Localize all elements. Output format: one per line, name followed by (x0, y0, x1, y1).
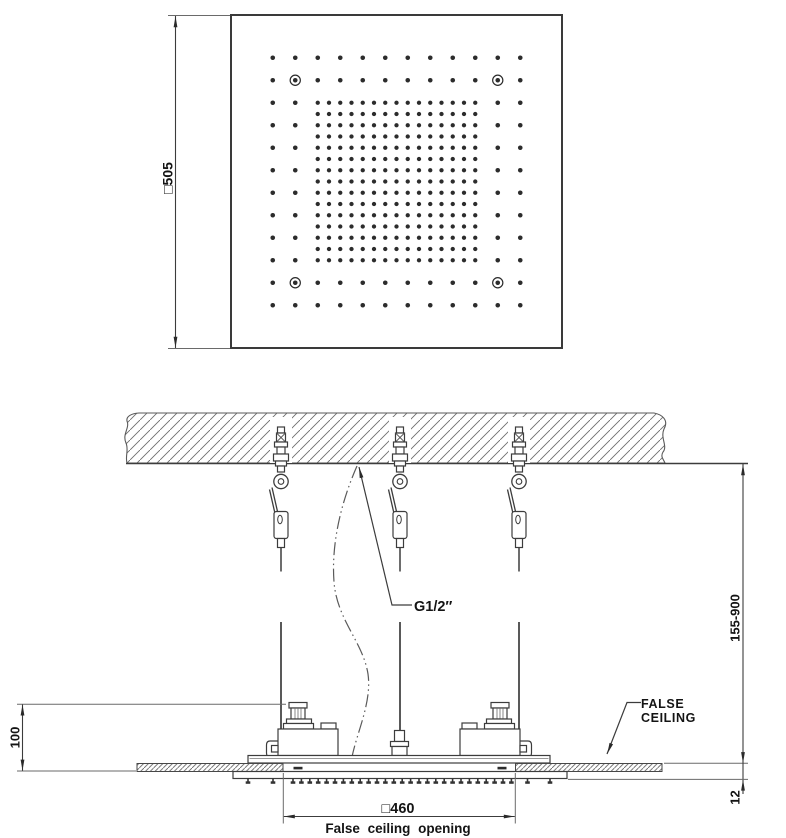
nozzle-dot (338, 157, 342, 161)
nozzle-dot (451, 101, 455, 105)
nozzle-dot (439, 134, 443, 138)
nozzle-dot (270, 213, 275, 218)
flexible-hose-centerline (334, 466, 369, 757)
nozzle-dot (372, 134, 376, 138)
nozzle-dot (349, 258, 353, 262)
false-ceiling-label-2: CEILING (641, 711, 696, 725)
nozzle-dot (450, 280, 455, 285)
nozzle-dot (327, 134, 331, 138)
nozzle-dot (518, 55, 523, 60)
nozzle-dot (518, 123, 523, 128)
nozzle-dot (394, 191, 398, 195)
nozzle-dot (316, 258, 320, 262)
nozzle-dot (327, 236, 331, 240)
nozzle-dot (473, 157, 477, 161)
nozzle-dot (406, 157, 410, 161)
nozzle-dot (349, 236, 353, 240)
nozzle-dot (450, 303, 455, 308)
nozzle-dot (439, 258, 443, 262)
nozzle-dot (428, 213, 432, 217)
nozzle-dot (361, 213, 365, 217)
nozzle-dot (338, 179, 342, 183)
nozzle-dot (462, 101, 466, 105)
nozzle-dot (327, 191, 331, 195)
nozzle-dot (349, 146, 353, 150)
dimension-155-900: 155-900 (664, 464, 748, 794)
nozzle-dot (327, 202, 331, 206)
nozzle-dot (405, 303, 410, 308)
nozzle-dot (462, 134, 466, 138)
nozzle-dot (270, 190, 275, 195)
nozzle-dot (473, 123, 477, 127)
nozzle-dot (495, 123, 500, 128)
nozzle-dot (338, 134, 342, 138)
nozzle-dot (462, 168, 466, 172)
nozzle-dot (417, 213, 421, 217)
nozzle-dot (439, 179, 443, 183)
nozzle-dot (293, 145, 298, 150)
nozzle-dot (360, 280, 365, 285)
left-connection-box (267, 703, 339, 758)
nozzle-dot (473, 55, 478, 60)
nozzle-dot (372, 213, 376, 217)
nozzle-dot (406, 236, 410, 240)
eyelet-ring (274, 474, 288, 488)
nozzle-dot (383, 191, 387, 195)
g12-callout: G1/2″ (359, 467, 452, 615)
nozzle-dot (428, 202, 432, 206)
nozzle-dot (293, 280, 298, 285)
nozzle-dot (394, 258, 398, 262)
nozzle-dot (462, 213, 466, 217)
nozzle-dot (383, 55, 388, 60)
dimension-12-label: 12 (728, 790, 743, 804)
nozzle-dot (451, 168, 455, 172)
nozzle-dot (338, 258, 342, 262)
nozzle-dot (495, 168, 500, 173)
nozzle-dot (383, 303, 388, 308)
nozzle-dot (518, 78, 523, 83)
nozzle-dot (417, 202, 421, 206)
nozzle-dot (450, 55, 455, 60)
nozzle-dot (417, 112, 421, 116)
false-ceiling-leader (607, 703, 641, 755)
nozzle-dot (383, 213, 387, 217)
dimension-155-900-label: 155-900 (728, 594, 743, 642)
nozzle-dot (439, 146, 443, 150)
nozzle-dot (327, 123, 331, 127)
nozzle-dot (495, 145, 500, 150)
nozzle-dot (372, 191, 376, 195)
nozzle-dot (451, 258, 455, 262)
nozzle-dot (417, 236, 421, 240)
nozzle-dot (439, 101, 443, 105)
nozzle-dot (270, 168, 275, 173)
nozzle-dot (383, 202, 387, 206)
nozzle-dot (349, 123, 353, 127)
nozzle-dot (372, 157, 376, 161)
nozzle-dot (428, 280, 433, 285)
nozzle-dot (518, 145, 523, 150)
panel-screw-right (498, 767, 507, 770)
nozzle-dot (439, 202, 443, 206)
dimension-100: 100 (8, 704, 287, 771)
nozzle-dot (439, 168, 443, 172)
nozzle-dot (518, 168, 523, 173)
nozzle-dot (349, 224, 353, 228)
nozzle-dot (406, 224, 410, 228)
nozzle-dot (394, 168, 398, 172)
nozzle-dot (327, 157, 331, 161)
nozzle-dot (270, 235, 275, 240)
nozzle-dot (439, 191, 443, 195)
false-ceiling-left (137, 764, 283, 772)
nozzle-dot (372, 236, 376, 240)
nozzle-dot (316, 224, 320, 228)
nozzle-dot (428, 224, 432, 228)
nozzle-dot (316, 123, 320, 127)
nozzle-dot (439, 157, 443, 161)
nozzle-dot (417, 224, 421, 228)
nozzle-dot (495, 190, 500, 195)
nozzle-dot (450, 78, 455, 83)
nozzle-dot (451, 157, 455, 161)
nozzle-dot (394, 213, 398, 217)
nozzle-dot (406, 202, 410, 206)
nozzle-dot (394, 179, 398, 183)
nozzle-dot (383, 247, 387, 251)
nozzle-dot (451, 191, 455, 195)
nozzle-dot (495, 258, 500, 263)
nozzle-dot (394, 134, 398, 138)
nozzle-dot (383, 123, 387, 127)
nozzle-dot (473, 258, 477, 262)
nozzle-dot (361, 123, 365, 127)
nozzle-dot (349, 179, 353, 183)
nozzle-dot (338, 101, 342, 105)
nozzle-dot (518, 280, 523, 285)
nozzle-dot (316, 134, 320, 138)
nozzle-dot (518, 213, 523, 218)
nozzle-dot (316, 157, 320, 161)
nozzle-dot (518, 100, 523, 105)
nozzle-dot (383, 78, 388, 83)
nozzle-dot (338, 303, 343, 308)
nozzle-dot (383, 101, 387, 105)
nozzle-dot (428, 123, 432, 127)
nozzle-dot (338, 112, 342, 116)
nozzle-dot (293, 235, 298, 240)
nozzle-dot (316, 213, 320, 217)
nozzle-dot (451, 123, 455, 127)
nozzle-dot (462, 236, 466, 240)
nozzle-dot (270, 123, 275, 128)
nozzle-dot (361, 146, 365, 150)
nozzle-dot (361, 112, 365, 116)
nozzle-dot (316, 247, 320, 251)
nozzle-dot (473, 224, 477, 228)
nozzle-dot (349, 112, 353, 116)
nozzle-dot (439, 247, 443, 251)
nozzle-dot (361, 191, 365, 195)
nozzle-dot (428, 303, 433, 308)
nozzle-dot (462, 157, 466, 161)
nozzle-dot (372, 202, 376, 206)
nozzle-dot (372, 112, 376, 116)
g12-label: G1/2″ (414, 599, 452, 615)
nozzle-dot (316, 202, 320, 206)
nozzle-dot (518, 303, 523, 308)
nozzle-dot (417, 168, 421, 172)
nozzle-dot (428, 112, 432, 116)
false-ceiling-label-1: FALSE (641, 697, 684, 711)
false-ceiling-right (516, 764, 663, 772)
nozzle-dot (293, 55, 298, 60)
nozzle-dot (383, 168, 387, 172)
nozzle-dot (293, 100, 298, 105)
carabiner-hook (510, 488, 516, 512)
nozzle-dot (406, 191, 410, 195)
nozzle-dot (349, 213, 353, 217)
nozzle-dot (383, 236, 387, 240)
nozzle-dot (338, 236, 342, 240)
nozzle-dot (428, 179, 432, 183)
carabiner-hook (272, 488, 278, 512)
nozzle-dot (316, 191, 320, 195)
nozzle-dot (361, 157, 365, 161)
nozzle-dot (338, 191, 342, 195)
opening-caption: False ceiling opening (325, 821, 470, 836)
nozzle-dot (495, 78, 500, 83)
nozzle-dot (518, 235, 523, 240)
nozzle-dot (462, 191, 466, 195)
nozzle-dot (349, 168, 353, 172)
nozzle-dot (473, 134, 477, 138)
nozzle-dot (495, 280, 500, 285)
nozzle-dot (293, 213, 298, 218)
nozzle-dot (406, 247, 410, 251)
nozzle-dot (394, 224, 398, 228)
nozzle-dot (428, 78, 433, 83)
nozzle-dot (361, 168, 365, 172)
nozzle-dot (473, 78, 478, 83)
nozzle-dot (338, 280, 343, 285)
nozzle-dot (338, 55, 343, 60)
nozzle-dot (316, 168, 320, 172)
nozzle-dot (361, 258, 365, 262)
nozzle-dot (293, 168, 298, 173)
shower-unit (248, 703, 550, 764)
nozzle-dot (349, 134, 353, 138)
dimension-505: □505 (160, 16, 176, 348)
nozzle-dot (406, 146, 410, 150)
nozzle-dot (417, 123, 421, 127)
nozzle-dot (327, 112, 331, 116)
nozzle-dot (473, 213, 477, 217)
nozzle-dot (270, 280, 275, 285)
nozzle-dot (394, 146, 398, 150)
nozzle-dot (451, 179, 455, 183)
nozzle-dot (428, 236, 432, 240)
nozzle-dot (439, 224, 443, 228)
nozzle-dot (428, 247, 432, 251)
nozzle-dot (451, 236, 455, 240)
nozzle-dot (428, 157, 432, 161)
nozzle-dot (473, 146, 477, 150)
nozzle-dot (462, 179, 466, 183)
eyelet-ring (512, 474, 526, 488)
eyelet-ring (393, 474, 407, 488)
nozzle-dot (383, 134, 387, 138)
nozzle-dot (372, 179, 376, 183)
dimension-505-label: □505 (160, 162, 176, 194)
nozzle-dot (451, 224, 455, 228)
nozzle-dot (327, 258, 331, 262)
nozzle-dot (361, 179, 365, 183)
nozzle-dot (293, 123, 298, 128)
nozzle-dot (360, 55, 365, 60)
nozzle-dot (383, 157, 387, 161)
nozzle-dot (394, 157, 398, 161)
nozzle-dot (495, 213, 500, 218)
nozzle-dot (394, 202, 398, 206)
nozzle-dot (405, 280, 410, 285)
nozzle-dot (316, 236, 320, 240)
nozzle-dot (316, 112, 320, 116)
right-connection-box (460, 703, 532, 758)
nozzle-dot (349, 247, 353, 251)
nozzle-dot (417, 179, 421, 183)
dimension-100-label: 100 (8, 727, 23, 749)
nozzle-dot (372, 168, 376, 172)
nozzle-dot (405, 78, 410, 83)
nozzle-dot (518, 258, 523, 263)
nozzle-dot (394, 247, 398, 251)
nozzle-dot (428, 191, 432, 195)
nozzle-dot (473, 247, 477, 251)
nozzle-dot (315, 78, 320, 83)
nozzle-dot (361, 101, 365, 105)
nozzle-dot (439, 112, 443, 116)
nozzle-dot (473, 179, 477, 183)
nozzle-dot (316, 146, 320, 150)
nozzle-dot (338, 146, 342, 150)
nozzle-dot (451, 213, 455, 217)
nozzle-dot (383, 179, 387, 183)
nozzle-dot (293, 78, 298, 83)
nozzle-dot (462, 224, 466, 228)
nozzle-dot (406, 134, 410, 138)
nozzle-dot (349, 101, 353, 105)
nozzle-dot (473, 191, 477, 195)
nozzle-dot (338, 168, 342, 172)
nozzle-dot (406, 179, 410, 183)
nozzle-dot (315, 303, 320, 308)
nozzle-dot (406, 112, 410, 116)
nozzle-dot (293, 258, 298, 263)
nozzle-dot (417, 101, 421, 105)
nozzle-dot (361, 202, 365, 206)
nozzle-dot (417, 191, 421, 195)
nozzle-dot (451, 112, 455, 116)
nozzle-dot (327, 247, 331, 251)
panel-screw-left (294, 767, 303, 770)
nozzle-dot (495, 100, 500, 105)
nozzle-dot (439, 213, 443, 217)
nozzle-dot (406, 168, 410, 172)
nozzle-dot (338, 202, 342, 206)
nozzle-dot (473, 303, 478, 308)
nozzle-dot (316, 101, 320, 105)
nozzle-dot (372, 258, 376, 262)
nozzle-teeth (246, 779, 553, 784)
nozzle-dot (383, 224, 387, 228)
nozzle-dot (360, 303, 365, 308)
nozzle-dot (270, 145, 275, 150)
nozzle-dot (360, 78, 365, 83)
nozzle-dot (417, 134, 421, 138)
technical-drawing-page: □505 G1/2″ (0, 0, 786, 838)
nozzle-dot (270, 100, 275, 105)
nozzle-dot (394, 112, 398, 116)
nozzle-dot (372, 146, 376, 150)
nozzle-dot (394, 123, 398, 127)
nozzle-dot (361, 134, 365, 138)
frame-plate (248, 756, 550, 764)
nozzle-dot (451, 247, 455, 251)
nozzle-dot (372, 247, 376, 251)
nozzle-dot (349, 202, 353, 206)
nozzle-dot (406, 258, 410, 262)
nozzle-dot (270, 303, 275, 308)
nozzle-dot (316, 179, 320, 183)
nozzle-dot (361, 224, 365, 228)
nozzle-dot (417, 258, 421, 262)
nozzle-dot (406, 101, 410, 105)
nozzle-dot (495, 235, 500, 240)
nozzle-dot (349, 157, 353, 161)
nozzle-dot (462, 146, 466, 150)
nozzle-dot (327, 224, 331, 228)
nozzle-dot (428, 134, 432, 138)
dimension-12: 12 (568, 779, 748, 804)
nozzle-dot (473, 236, 477, 240)
nozzle-dot (462, 258, 466, 262)
false-ceiling-callout: FALSE CEILING (607, 697, 696, 754)
nozzle-dot (327, 146, 331, 150)
dimension-460-label: □460 (382, 801, 415, 817)
nozzle-dot (451, 146, 455, 150)
nozzle-dot (473, 168, 477, 172)
nozzle-dot (383, 112, 387, 116)
nozzle-dot (462, 123, 466, 127)
nozzle-dot (327, 168, 331, 172)
nozzle-dot (394, 236, 398, 240)
nozzle-dot (315, 280, 320, 285)
nozzle-dot (293, 190, 298, 195)
middle-inlet-fitting (391, 731, 409, 756)
nozzle-dot (338, 213, 342, 217)
carabiner-hook (391, 488, 397, 512)
nozzle-dot (270, 78, 275, 83)
nozzle-dot (338, 224, 342, 228)
nozzle-dot (315, 55, 320, 60)
nozzle-dot (327, 213, 331, 217)
nozzle-dot (372, 101, 376, 105)
nozzle-dot (338, 123, 342, 127)
nozzle-dot (338, 78, 343, 83)
nozzle-dot (270, 258, 275, 263)
